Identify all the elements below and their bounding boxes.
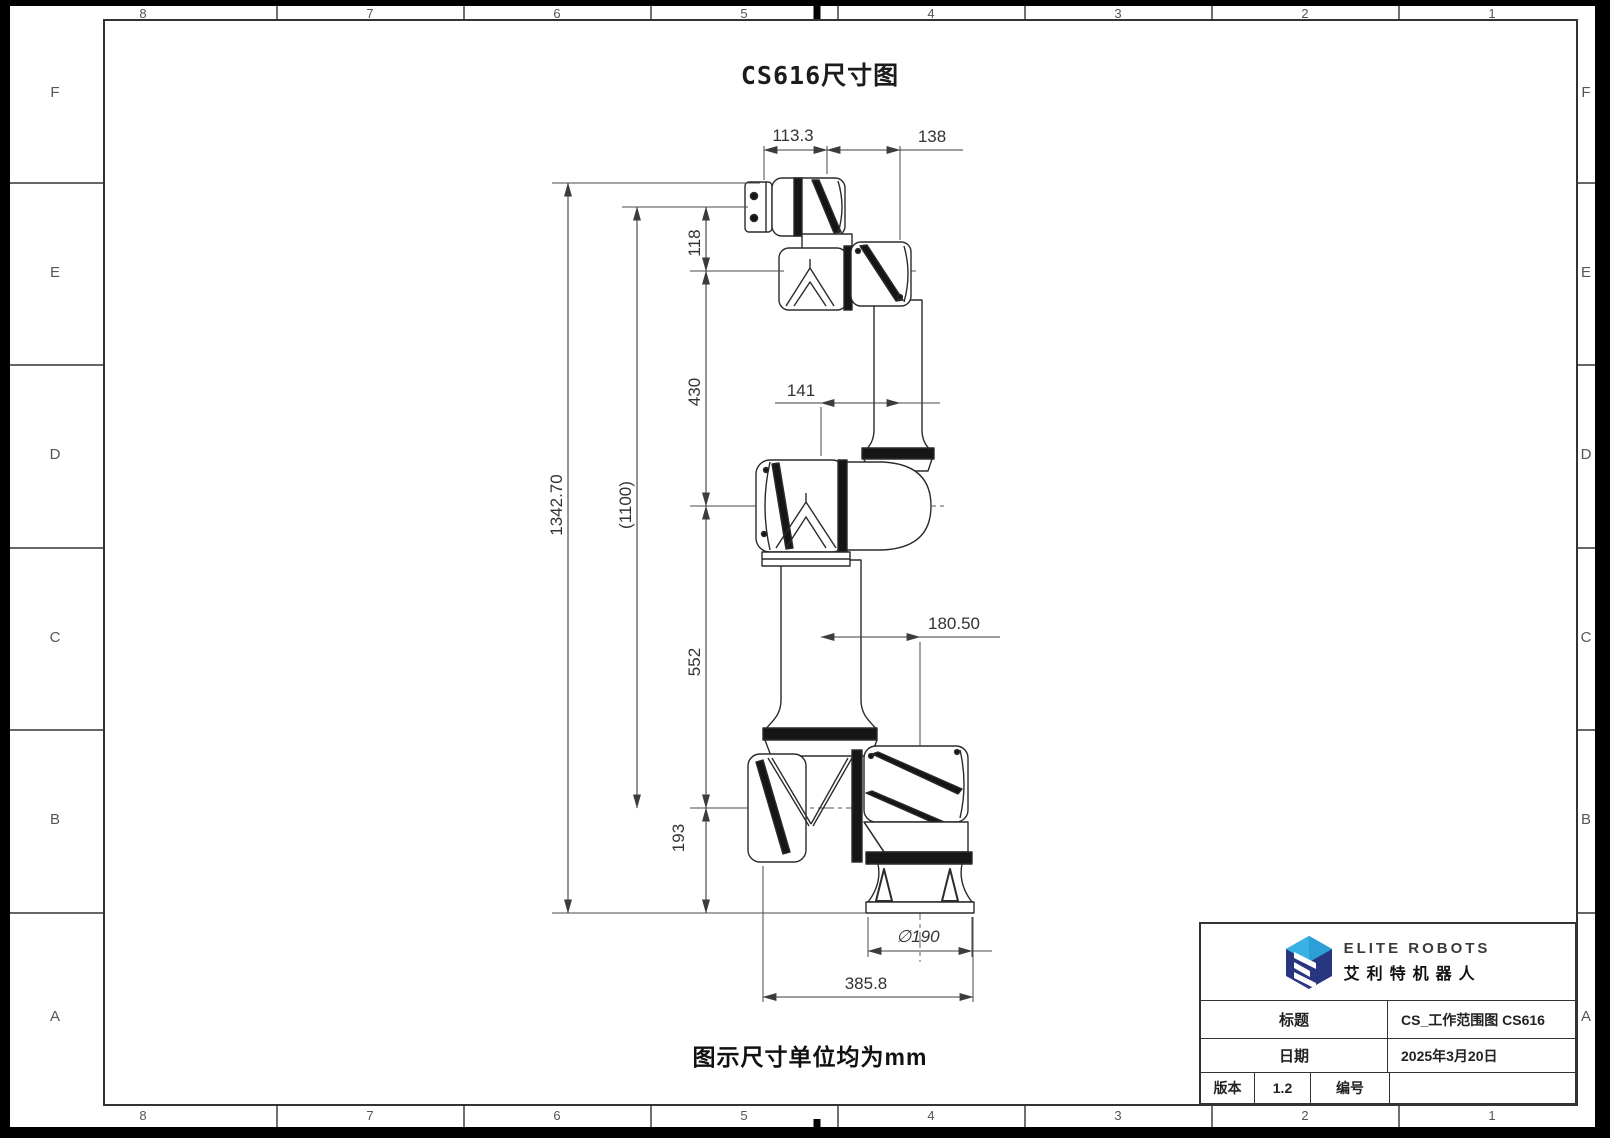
title-block-logo-row: ELITE ROBOTS 艾利特机器人 [1201,924,1575,1001]
zone-row-right-d: D [1571,446,1601,463]
version-row: 版本 1.2 编号 [1201,1073,1575,1103]
number-value [1390,1073,1575,1103]
zone-col-bottom-7: 7 [350,1108,390,1123]
zone-col-top-1: 1 [1472,6,1512,21]
zone-row-left-c: C [40,629,70,646]
zone-row-right-e: E [1571,264,1601,281]
zone-col-top-2: 2 [1285,6,1325,21]
brand-name-en: ELITE ROBOTS [1344,940,1491,957]
zone-col-top-5: 5 [724,6,764,21]
zone-col-top-8: 8 [123,6,163,21]
unit-note: 图示尺寸单位均为mm [610,1038,1010,1072]
version-value: 1.2 [1255,1073,1311,1103]
zone-col-top-6: 6 [537,6,577,21]
number-label: 编号 [1311,1073,1390,1103]
zone-row-right-f: F [1571,84,1601,101]
zone-row-left-d: D [40,446,70,463]
zone-col-bottom-6: 6 [537,1108,577,1123]
zone-row-left-b: B [40,811,70,828]
brand-text: ELITE ROBOTS 艾利特机器人 [1344,940,1491,984]
zone-col-bottom-2: 2 [1285,1108,1325,1123]
brand-name-cn: 艾利特机器人 [1344,960,1491,984]
zone-row-left-a: A [40,1008,70,1025]
zone-row-right-b: B [1571,811,1601,828]
zone-col-bottom-4: 4 [911,1108,951,1123]
version-label: 版本 [1201,1073,1255,1103]
zone-col-bottom-1: 1 [1472,1108,1512,1123]
elite-robots-logo-icon [1286,936,1332,989]
zone-row-left-f: F [40,84,70,101]
title-label: 标题 [1201,1001,1388,1038]
zone-row-right-c: C [1571,629,1601,646]
zone-col-bottom-8: 8 [123,1108,163,1123]
zone-row-left-e: E [40,264,70,281]
zone-col-bottom-5: 5 [724,1108,764,1123]
title-block: ELITE ROBOTS 艾利特机器人 标题 CS_工作范围图 CS616 日期… [1199,922,1577,1105]
title-row: 标题 CS_工作范围图 CS616 [1201,1001,1575,1039]
date-value: 2025年3月20日 [1388,1039,1575,1072]
title-value: CS_工作范围图 CS616 [1388,1001,1575,1038]
drawing-sheet-stage: 8 7 6 5 4 3 2 1 8 7 6 5 4 3 2 1 F E D C … [0,0,1610,1138]
page-title: CS616尺寸图 [650,56,990,92]
zone-col-top-7: 7 [350,6,390,21]
zone-col-top-3: 3 [1098,6,1138,21]
date-label: 日期 [1201,1039,1388,1072]
zone-col-bottom-3: 3 [1098,1108,1138,1123]
zone-col-top-4: 4 [911,6,951,21]
date-row: 日期 2025年3月20日 [1201,1039,1575,1073]
